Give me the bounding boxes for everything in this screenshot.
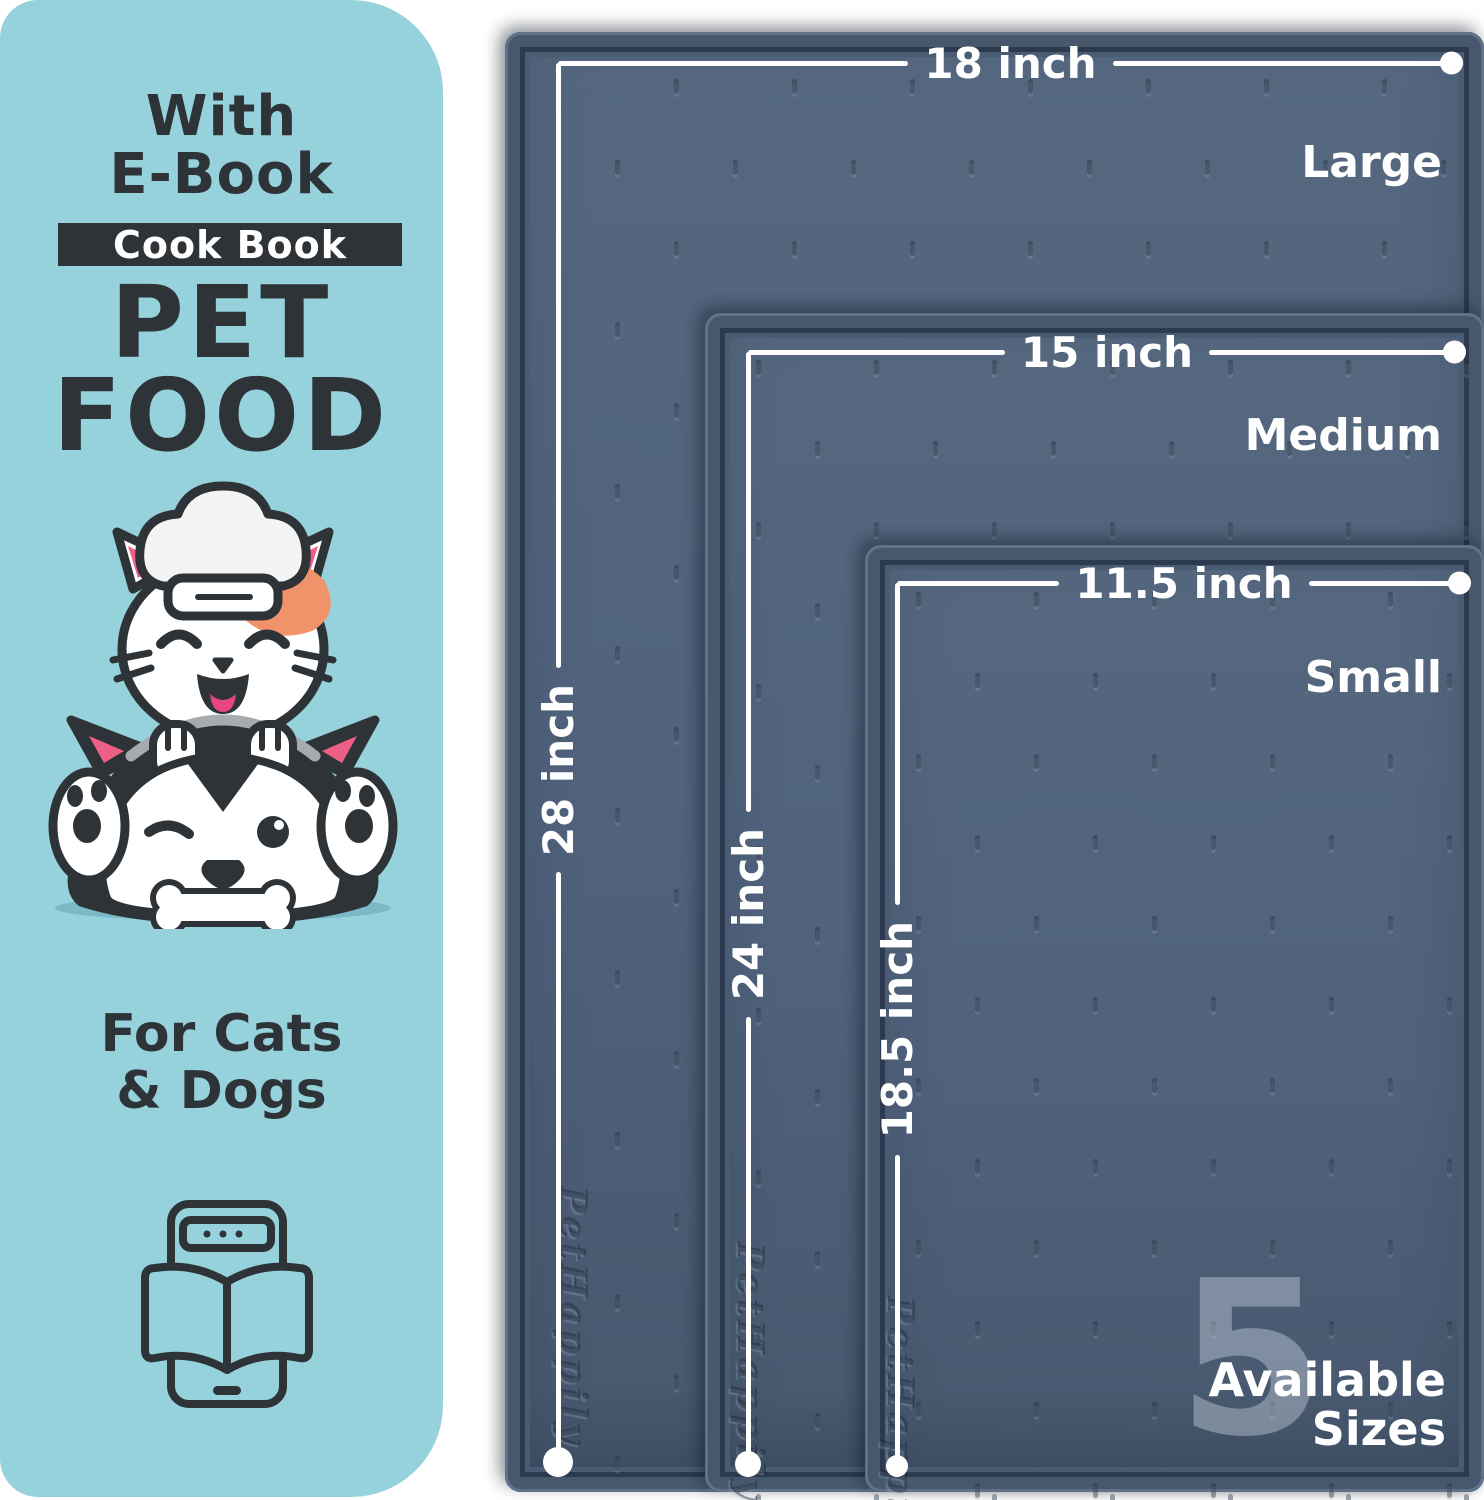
width-dimension-medium: 15 inch — [748, 338, 1466, 366]
cookbook-badge-label: Cook Book — [113, 223, 347, 267]
dimension-line — [897, 581, 1059, 586]
width-label-large: 18 inch — [908, 39, 1112, 88]
pet-food-title-line1: PET — [0, 276, 443, 369]
dimension-endpoint-dot — [735, 1451, 761, 1477]
dimension-endpoint-dot — [543, 1447, 573, 1477]
height-dimension-medium: 24 inch — [734, 352, 762, 1477]
dimension-line — [1309, 581, 1471, 586]
ebook-tablet-icon — [137, 1200, 317, 1410]
pet-food-title-line2: FOOD — [0, 369, 443, 462]
dimension-line — [895, 583, 900, 905]
for-cats-dogs-line1: For Cats — [0, 1006, 443, 1063]
dimension-endpoint-dot — [1443, 341, 1466, 364]
width-dimension-large: 18 inch — [558, 49, 1463, 77]
dimension-endpoint-dot — [886, 1455, 908, 1477]
product-infographic: With E-Book Cook Book PET FOOD — [0, 0, 1484, 1500]
height-label-large: 28 inch — [534, 668, 583, 872]
width-dimension-small: 11.5 inch — [897, 569, 1471, 597]
dimension-line — [746, 352, 751, 812]
dimension-line — [895, 1155, 900, 1477]
dimension-line — [746, 1017, 751, 1477]
dimension-line — [556, 63, 561, 668]
dimension-line — [1113, 61, 1463, 66]
for-cats-dogs-heading: For Cats & Dogs — [0, 1006, 443, 1120]
height-label-small: 18.5 inch — [873, 905, 922, 1154]
available-sizes-line2: Sizes — [1209, 1405, 1446, 1454]
with-ebook-heading: With E-Book — [0, 88, 443, 204]
width-label-small: 11.5 inch — [1059, 559, 1308, 608]
dimension-line — [556, 872, 561, 1477]
dimension-line — [1209, 350, 1466, 355]
width-label-medium: 15 inch — [1005, 328, 1209, 377]
height-label-medium: 24 inch — [724, 812, 773, 1016]
with-ebook-line2: E-Book — [0, 146, 443, 204]
dimension-endpoint-dot — [1448, 572, 1471, 595]
size-label-medium: Medium — [1245, 410, 1442, 461]
for-cats-dogs-line2: & Dogs — [0, 1063, 443, 1120]
available-sizes-caption: Available Sizes — [1209, 1356, 1446, 1454]
dimension-line — [748, 350, 1005, 355]
cookbook-badge: Cook Book — [58, 223, 402, 266]
size-label-large: Large — [1301, 137, 1442, 188]
height-dimension-small: 18.5 inch — [883, 583, 911, 1477]
dimension-line — [558, 61, 908, 66]
with-ebook-line1: With — [0, 88, 443, 146]
pet-food-title: PET FOOD — [0, 276, 443, 462]
size-label-small: Small — [1305, 652, 1442, 703]
info-panel: With E-Book Cook Book PET FOOD — [0, 0, 443, 1497]
available-sizes-line1: Available — [1209, 1356, 1446, 1405]
dimension-endpoint-dot — [1440, 52, 1463, 75]
height-dimension-large: 28 inch — [544, 63, 572, 1477]
cat-dog-chef-illustration — [11, 474, 433, 929]
